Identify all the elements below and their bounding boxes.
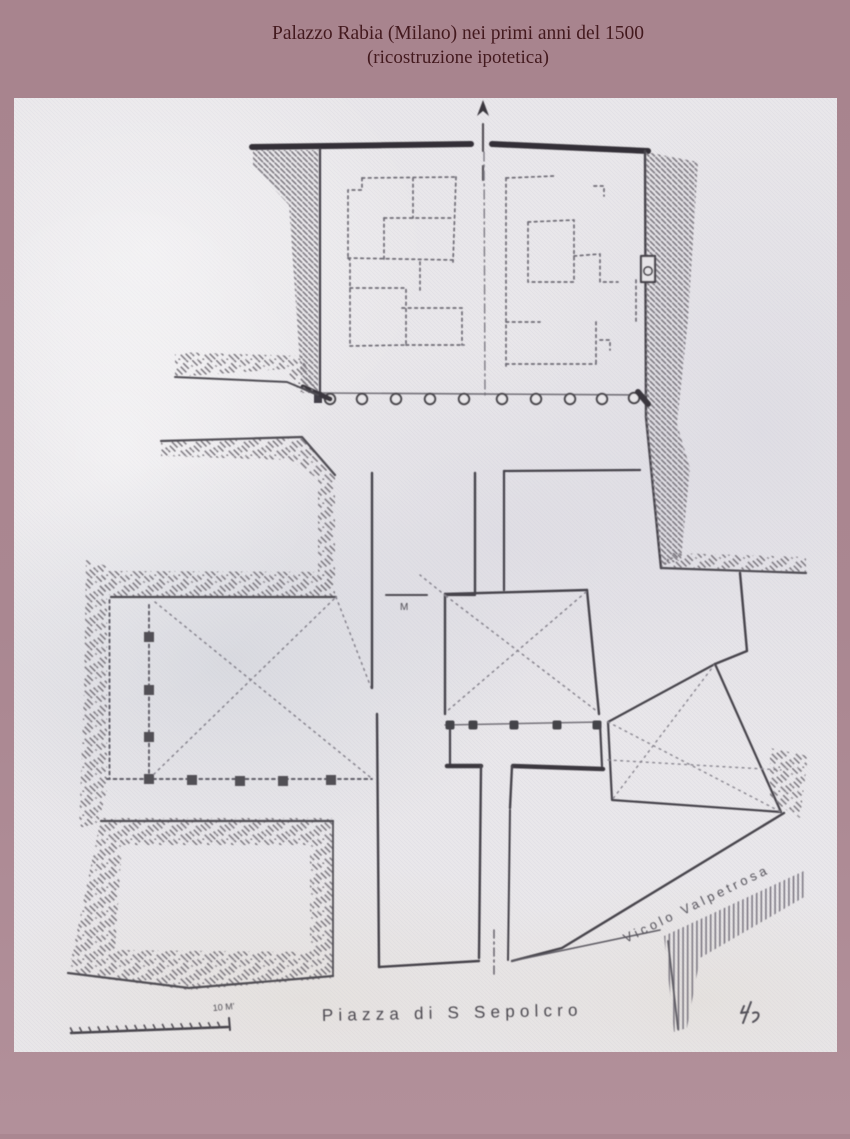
svg-text:10 M’: 10 M’ — [212, 1001, 235, 1013]
svg-text:(ricostruzione ipotetica): (ricostruzione ipotetica) — [367, 47, 549, 68]
svg-text:M: M — [400, 602, 408, 613]
svg-text:Palazzo Rabia (Milano) nei pri: Palazzo Rabia (Milano) nei primi anni de… — [272, 23, 644, 44]
